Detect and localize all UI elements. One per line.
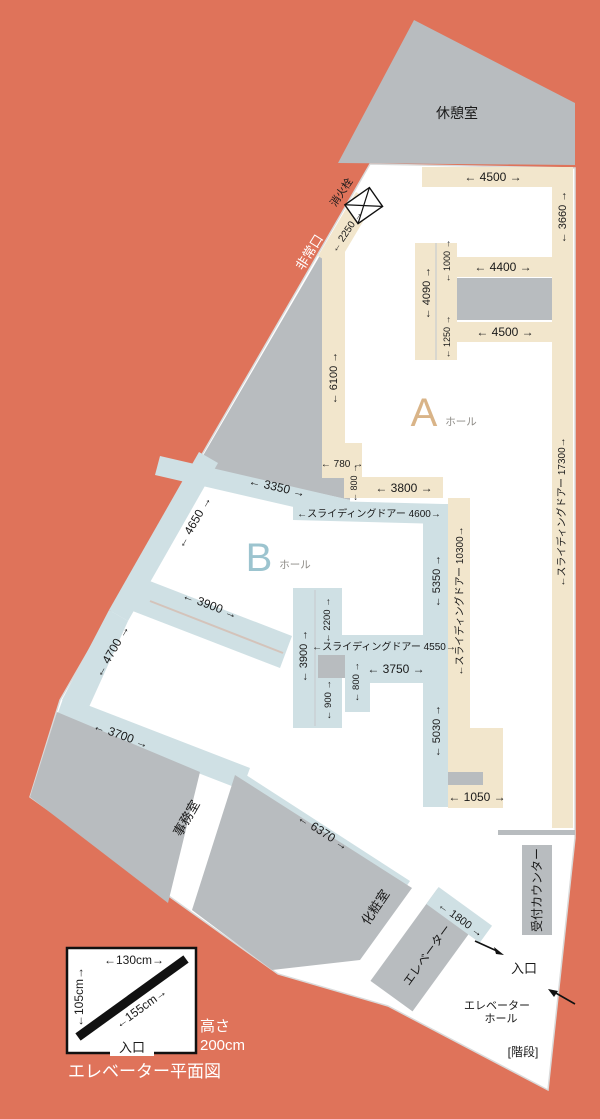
dim-4090: ← 4090 → — [421, 267, 433, 320]
dim-900: ← 900 → — [323, 680, 334, 720]
dim-3660: ← 3660 → — [557, 191, 569, 244]
elevator-hall-label-1: エレベーター — [464, 999, 530, 1012]
room-rest-label: 休憩室 — [436, 105, 478, 121]
dim-4400: ← 4400 → — [474, 260, 531, 274]
entrance-label: 入口 — [511, 961, 537, 976]
dim-1000: ← 1000 → — [442, 239, 452, 282]
dim-3750: ← 3750 → — [367, 662, 424, 676]
block-center — [318, 655, 345, 678]
dim-5030: ← 5030 → — [431, 705, 443, 758]
dim-4550: ←スライディングドアー 4550→ — [312, 640, 456, 653]
dim-1050: ← 1050 → — [448, 790, 505, 804]
floor-plan-canvas: 休憩室 ← 4500 → ← 3660 → ← 2250 → 消火栓 非常口 ←… — [0, 0, 600, 1119]
stairs-label: [階段] — [508, 1044, 539, 1059]
dim-3800: ← 3800 → — [375, 481, 432, 495]
elevator-hall-label-2: ホール — [485, 1012, 518, 1025]
dim-5350: ← 5350 → — [431, 555, 443, 608]
corridor-a-1050-top — [467, 728, 503, 750]
block-1050 — [448, 772, 483, 785]
hall-b-suffix: ホール — [279, 559, 311, 571]
hall-a-suffix: ホール — [445, 416, 477, 428]
hall-a-letter: A — [411, 391, 438, 435]
floor-plan: 休憩室 ← 4500 → ← 3660 → ← 2250 → 消火栓 非常口 ←… — [0, 0, 600, 1119]
dim-6100: ← 6100 → — [328, 352, 340, 405]
dim-4500-top: ← 4500 → — [464, 170, 521, 184]
dim-800-a: ← 800 → — [349, 464, 359, 502]
legend-dim-105cm: ←105cm→ — [72, 967, 86, 1027]
dim-17300: ←スライディングドアー 17300→ — [555, 437, 568, 586]
dim-4500-mid: ← 4500 → — [476, 325, 533, 339]
wall-line-reception — [498, 830, 575, 835]
dim-10300: ←スライディングドアー 10300→ — [453, 526, 466, 675]
dim-3900-vert: ← 3900 → — [298, 630, 310, 683]
legend-entrance-label: 入口 — [119, 1040, 145, 1055]
dim-800-b: ← 800 → — [351, 662, 362, 702]
dim-2200: ← 2200 → — [322, 597, 333, 642]
legend-height-label-1: 高さ — [200, 1018, 230, 1035]
dim-4600: ←スライディングドアー 4600→ — [297, 507, 441, 520]
legend-height-label-2: 200cm — [200, 1037, 245, 1054]
room-reception-label: 受付カウンター — [530, 848, 544, 932]
legend-dim-130cm: ←130cm→ — [104, 953, 164, 967]
corridor-b-right — [423, 504, 448, 807]
dim-1250: ← 1250 → — [442, 315, 452, 358]
hall-b-letter: B — [246, 536, 273, 580]
legend-caption: エレベーター平面図 — [68, 1062, 221, 1081]
